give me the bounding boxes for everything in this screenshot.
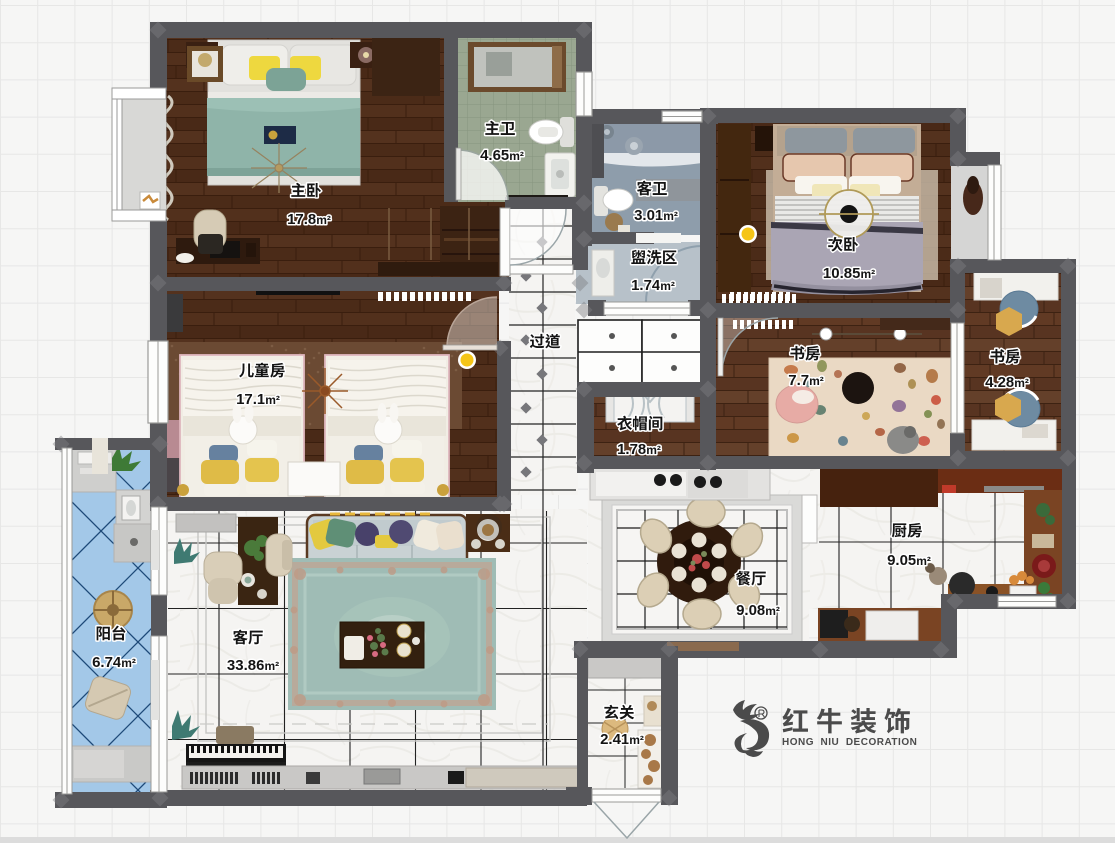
svg-text:3.01m²: 3.01m² — [634, 207, 678, 224]
svg-text:HONG NIU DECORATION: HONG NIU DECORATION — [782, 737, 917, 748]
svg-text:6.74m²: 6.74m² — [92, 654, 136, 671]
svg-text:4.65m²: 4.65m² — [480, 147, 524, 164]
svg-text:2.41m²: 2.41m² — [600, 731, 644, 748]
svg-text:4.28m²: 4.28m² — [985, 374, 1029, 391]
svg-text:9.05m²: 9.05m² — [887, 552, 931, 569]
svg-text:10.85m²: 10.85m² — [823, 265, 875, 282]
svg-text:1.74m²: 1.74m² — [631, 277, 675, 294]
svg-text:17.1m²: 17.1m² — [236, 391, 280, 408]
svg-text:33.86m²: 33.86m² — [227, 657, 279, 674]
svg-text:7.7m²: 7.7m² — [788, 372, 824, 389]
svg-text:17.8m²: 17.8m² — [287, 211, 331, 228]
svg-text:1.78m²: 1.78m² — [617, 441, 661, 458]
svg-text:9.08m²: 9.08m² — [736, 602, 780, 619]
